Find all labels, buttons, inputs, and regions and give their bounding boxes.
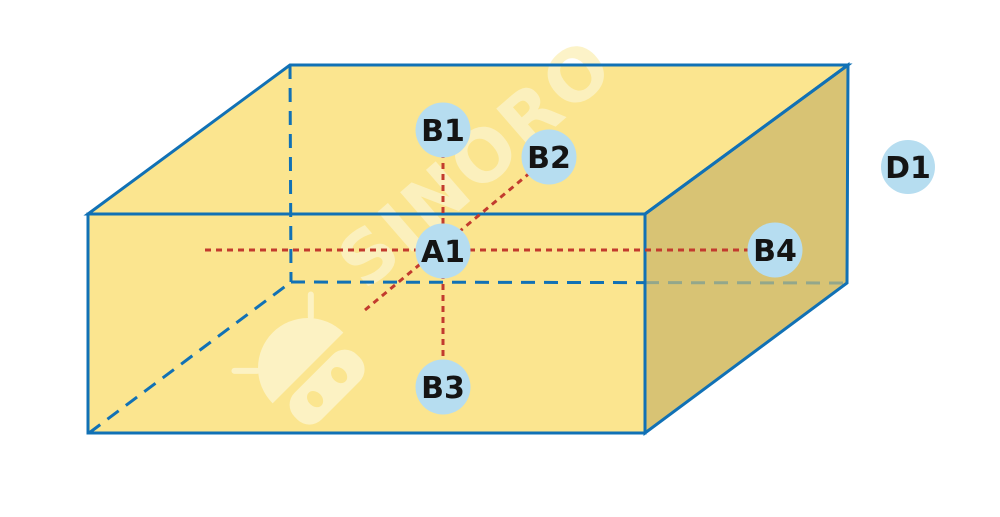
point-a1: A1: [416, 224, 471, 279]
point-b4: B4: [748, 223, 803, 278]
point-b2-label: B2: [527, 141, 571, 176]
point-b4-label: B4: [753, 234, 797, 269]
point-a1-label: A1: [421, 235, 465, 270]
point-b1: B1: [416, 103, 471, 158]
point-d1-label: D1: [885, 151, 931, 186]
point-b2: B2: [522, 130, 577, 185]
point-b3: B3: [416, 360, 471, 415]
point-d1: D1: [881, 140, 935, 194]
cuboid-diagram: SINORO A1 B: [0, 0, 1000, 517]
point-b1-label: B1: [421, 114, 465, 149]
cuboid-diagram-canvas: SINORO A1 B: [0, 0, 1000, 517]
point-b3-label: B3: [421, 371, 465, 406]
